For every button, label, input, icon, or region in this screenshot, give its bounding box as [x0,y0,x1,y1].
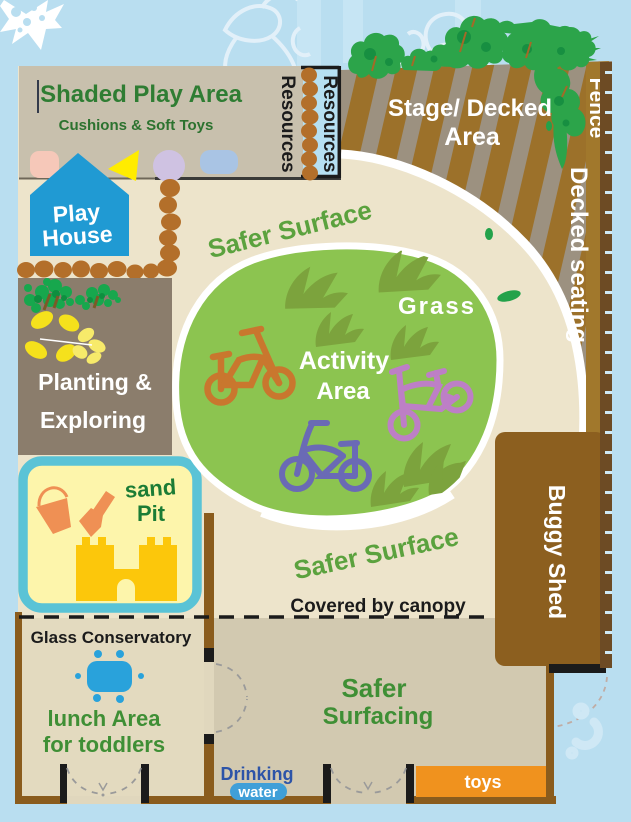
svg-text:Glass Conservatory: Glass Conservatory [31,628,192,647]
svg-text:Pit: Pit [137,501,166,526]
svg-text:Resources: Resources [277,75,298,172]
svg-text:Area: Area [444,123,501,151]
svg-text:Decked seating: Decked seating [565,167,592,343]
svg-text:Area: Area [316,378,370,405]
svg-text:Grass: Grass [398,293,476,320]
svg-text:Resources: Resources [319,75,340,172]
svg-text:lunch Area: lunch Area [48,706,162,731]
svg-text:Activity: Activity [299,347,389,375]
svg-text:sand: sand [124,474,177,503]
svg-text:for toddlers: for toddlers [43,732,165,757]
svg-text:Planting &: Planting & [38,369,152,395]
svg-text:water: water [237,784,277,801]
svg-text:toys: toys [464,772,501,792]
svg-text:Stage/ Decked: Stage/ Decked [388,95,552,122]
svg-text:Cushions & Soft Toys: Cushions & Soft Toys [59,117,214,134]
svg-text:Exploring: Exploring [40,407,146,433]
svg-text:Surfacing: Surfacing [323,703,434,730]
svg-text:Safer: Safer [341,673,406,703]
svg-text:Drinking: Drinking [220,764,293,784]
svg-text:Covered by canopy: Covered by canopy [290,596,466,617]
svg-text:Buggy Shed: Buggy Shed [544,485,570,619]
svg-text:House: House [41,221,113,252]
svg-text:Shaded Play Area: Shaded Play Area [40,81,243,108]
